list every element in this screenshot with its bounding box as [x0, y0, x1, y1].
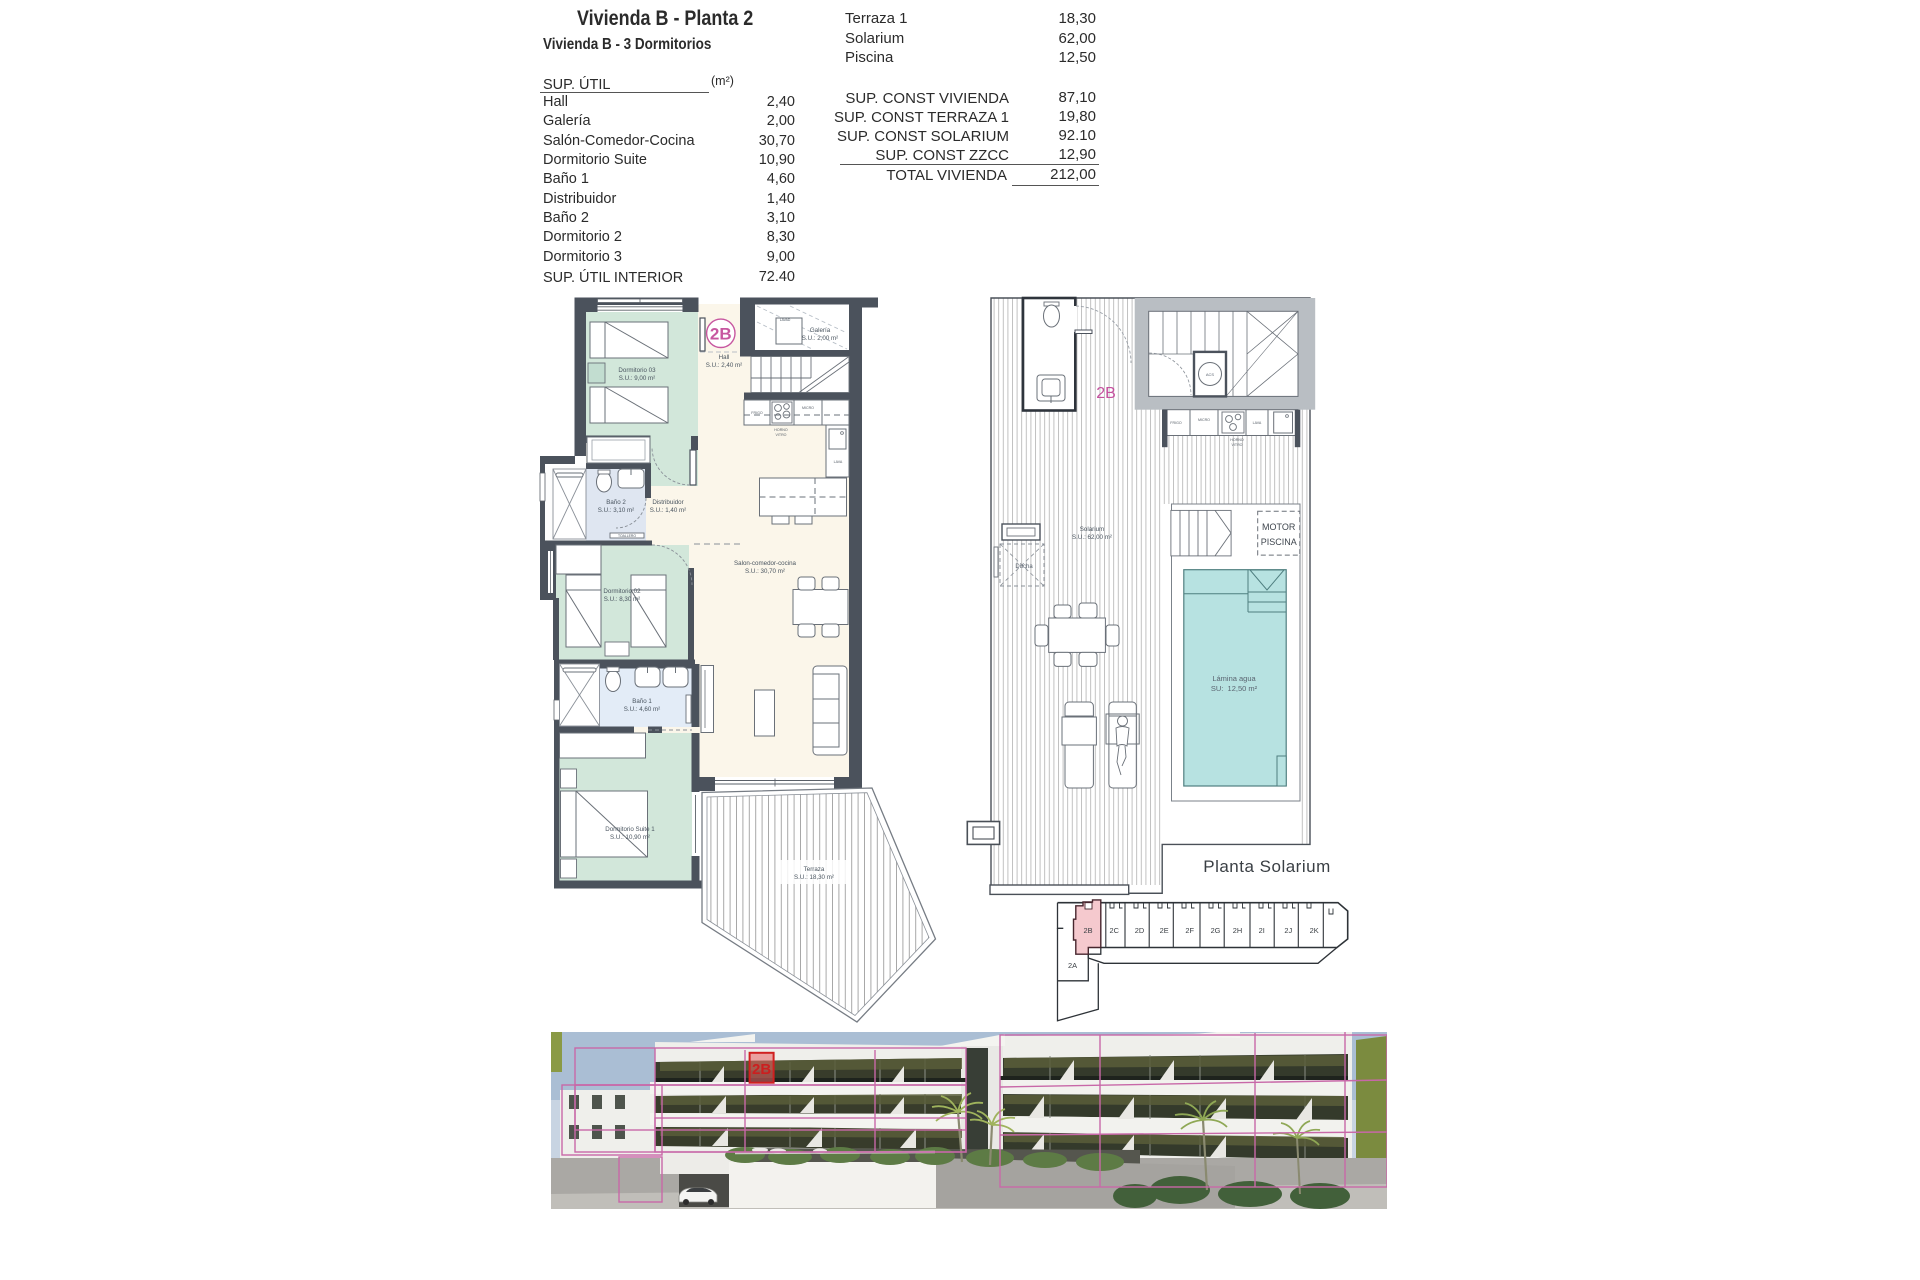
- svg-text:2A: 2A: [1068, 961, 1077, 970]
- svg-text:2I: 2I: [1259, 926, 1265, 935]
- svg-text:VITRO: VITRO: [1232, 443, 1243, 447]
- svg-text:2C: 2C: [1109, 926, 1119, 935]
- svg-text:LAVAD: LAVAD: [780, 318, 791, 322]
- svg-text:Salon-comedor-cocina: Salon-comedor-cocina: [734, 560, 796, 567]
- svg-text:Hall: Hall: [719, 354, 730, 361]
- svg-text:S.U.: 3,10 m²: S.U.: 3,10 m²: [598, 507, 634, 514]
- svg-text:2D: 2D: [1135, 926, 1144, 935]
- svg-text:2G: 2G: [1211, 926, 1221, 935]
- svg-text:Dormitorio Suite 1: Dormitorio Suite 1: [605, 826, 655, 833]
- svg-text:HORNO: HORNO: [774, 428, 788, 432]
- svg-text:FRIGO: FRIGO: [751, 411, 763, 415]
- svg-text:2F: 2F: [1185, 926, 1194, 935]
- svg-text:VITRO: VITRO: [776, 433, 787, 437]
- svg-text:FRIGO: FRIGO: [1170, 421, 1182, 425]
- svg-text:MICRO: MICRO: [802, 406, 814, 410]
- svg-text:S.U.: 9,00 m²: S.U.: 9,00 m²: [619, 375, 655, 382]
- svg-text:2B: 2B: [1083, 926, 1092, 935]
- svg-text:S.U.: 1,40 m²: S.U.: 1,40 m²: [650, 507, 686, 514]
- svg-text:Terraza: Terraza: [804, 866, 825, 873]
- svg-text:S.U.: 2,40 m²: S.U.: 2,40 m²: [706, 362, 742, 369]
- svg-text:LAVA: LAVA: [834, 460, 843, 464]
- svg-text:SU: 12,50 m²: SU: 12,50 m²: [1211, 684, 1258, 693]
- svg-text:MOTOR: MOTOR: [1262, 522, 1296, 532]
- svg-text:2E: 2E: [1160, 926, 1169, 935]
- svg-text:LAVA: LAVA: [1253, 421, 1262, 425]
- svg-text:S.U.: 2,00 m²: S.U.: 2,00 m²: [802, 335, 838, 342]
- svg-text:Distribuidor: Distribuidor: [652, 499, 683, 506]
- svg-text:S.U.: 30,70 m²: S.U.: 30,70 m²: [745, 568, 785, 575]
- svg-text:S.U.: 8,30 m²: S.U.: 8,30 m²: [604, 596, 640, 603]
- svg-text:TOALLERO: TOALLERO: [618, 534, 636, 538]
- svg-text:2H: 2H: [1233, 926, 1242, 935]
- svg-text:PISCINA: PISCINA: [1261, 537, 1297, 547]
- svg-text:S.U.: 10,90 m²: S.U.: 10,90 m²: [610, 834, 650, 841]
- svg-text:ACS: ACS: [1206, 372, 1215, 377]
- svg-text:Dormitorio 03: Dormitorio 03: [618, 367, 656, 374]
- svg-text:Lámina agua: Lámina agua: [1212, 674, 1256, 683]
- svg-text:S.U.: 4,60 m²: S.U.: 4,60 m²: [624, 706, 660, 713]
- svg-text:2J: 2J: [1284, 926, 1292, 935]
- svg-text:2B: 2B: [710, 325, 732, 344]
- svg-text:2B: 2B: [1096, 385, 1116, 402]
- svg-text:Galería: Galería: [810, 327, 831, 334]
- svg-text:S.U.: 18,30 m²: S.U.: 18,30 m²: [794, 874, 834, 881]
- svg-text:Planta Solarium: Planta Solarium: [1203, 857, 1331, 876]
- svg-text:HORNO: HORNO: [1230, 438, 1244, 442]
- svg-text:Ducha: Ducha: [1015, 564, 1033, 570]
- svg-text:S.U.: 62,00 m²: S.U.: 62,00 m²: [1072, 534, 1112, 541]
- svg-text:MICRO: MICRO: [1198, 418, 1210, 422]
- svg-text:Dormitorio 02: Dormitorio 02: [603, 588, 641, 595]
- svg-text:Solarium: Solarium: [1080, 526, 1104, 533]
- svg-text:2B: 2B: [752, 1061, 771, 1078]
- svg-text:Baño 2: Baño 2: [606, 499, 626, 506]
- svg-text:2K: 2K: [1310, 926, 1319, 935]
- svg-text:Baño 1: Baño 1: [632, 698, 652, 705]
